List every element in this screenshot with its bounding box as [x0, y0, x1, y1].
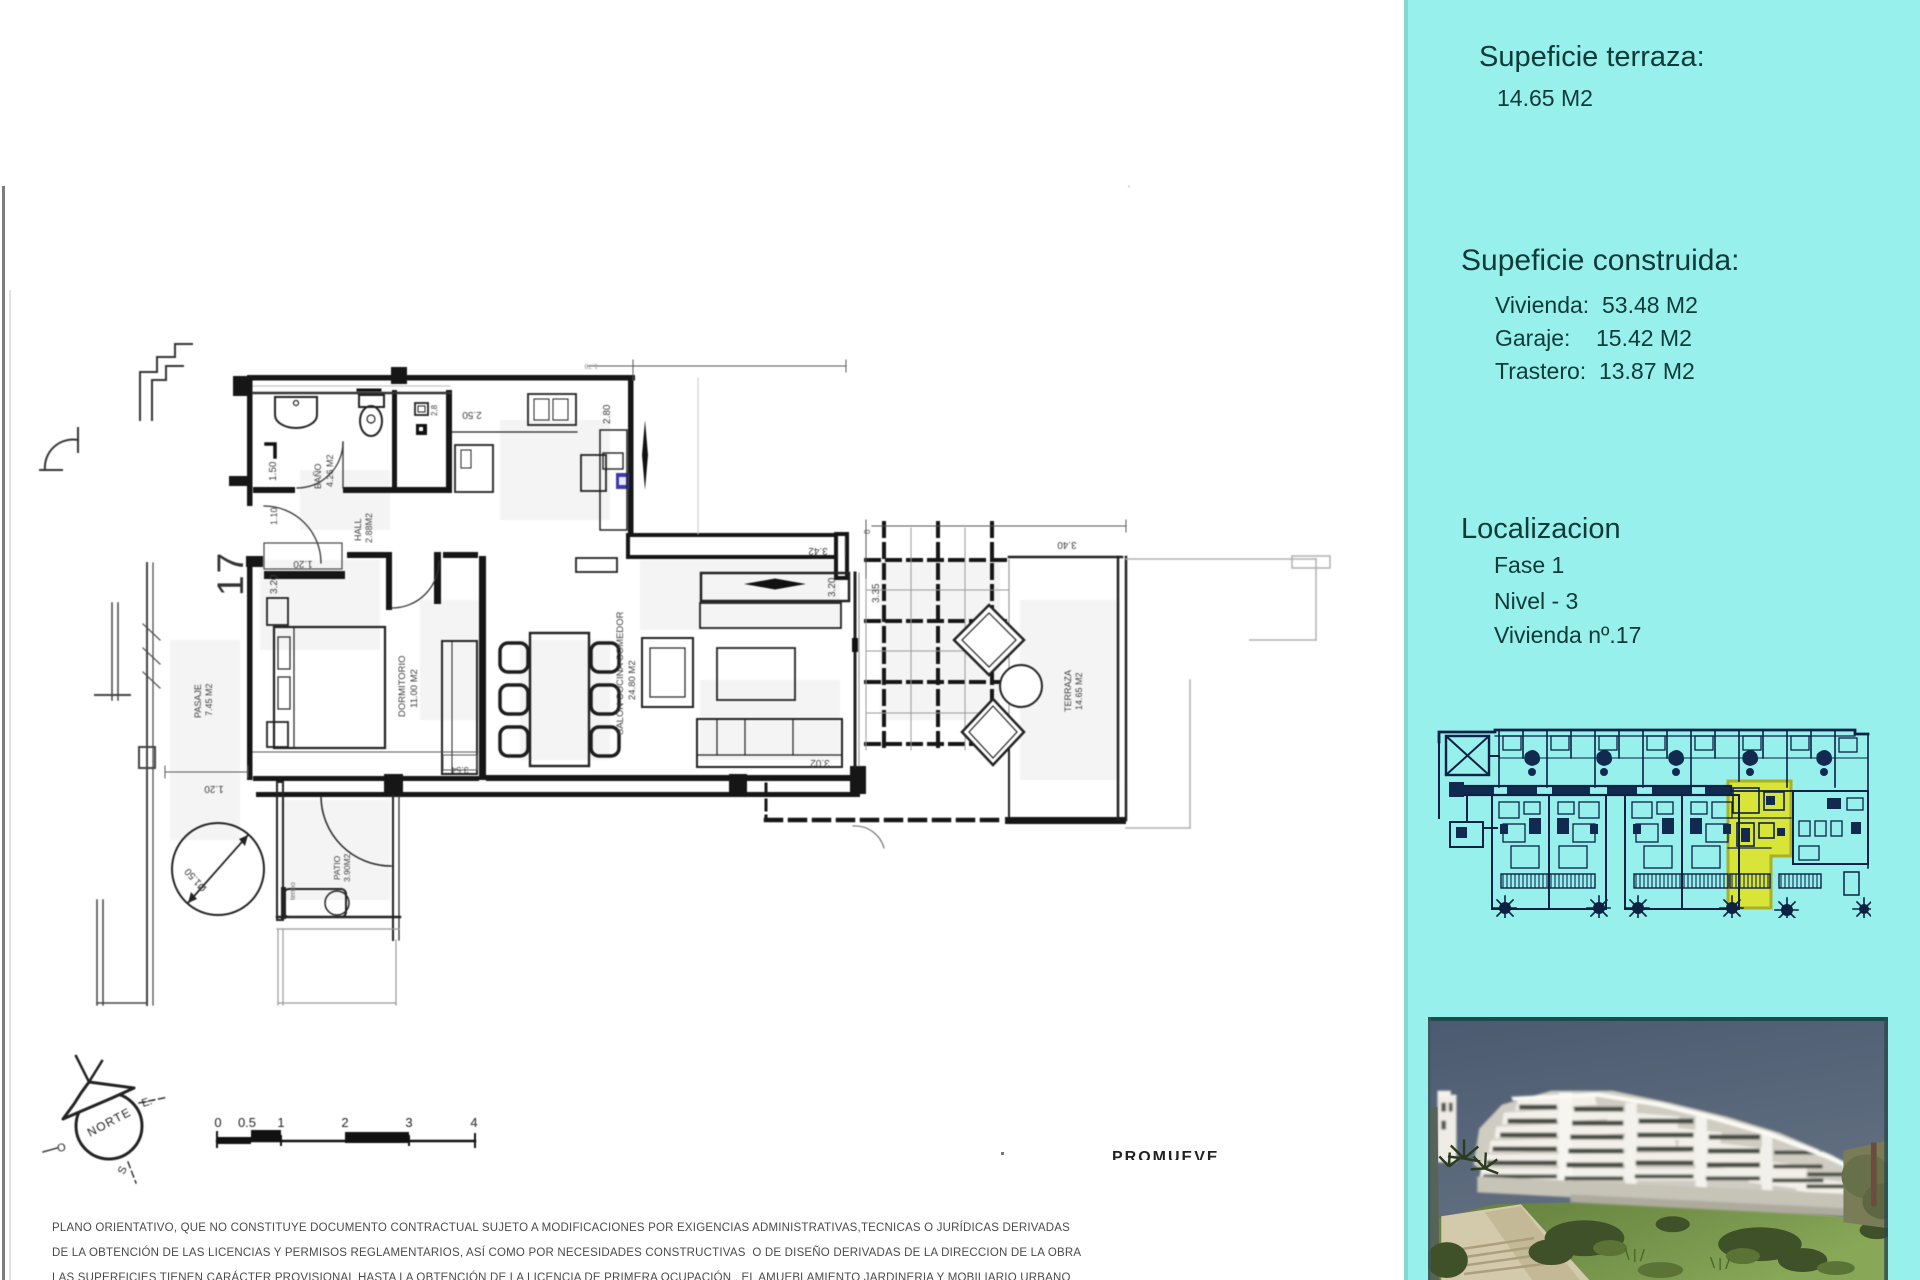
svg-text:Ø1.50: Ø1.50 [183, 865, 210, 893]
svg-text:termo: termo [290, 882, 297, 900]
svg-text:24.80 M2: 24.80 M2 [627, 660, 638, 700]
svg-text:S: S [116, 1165, 130, 1177]
svg-text:4: 4 [470, 1115, 477, 1130]
svg-text:3: 3 [405, 1115, 412, 1130]
svg-text:1.20: 1.20 [293, 558, 313, 569]
svg-text:DORMITORIO: DORMITORIO [397, 655, 408, 717]
svg-text:3.20: 3.20 [269, 574, 280, 594]
svg-text:0: 0 [214, 1115, 221, 1130]
svg-text:BAÑO: BAÑO [313, 463, 323, 489]
svg-text:E.-: E.- [140, 1094, 157, 1110]
svg-text:1.10: 1.10 [269, 507, 279, 525]
svg-text:3.90M2: 3.90M2 [342, 853, 352, 882]
svg-text:PATIO: PATIO [332, 855, 342, 880]
svg-text:2.88M2: 2.88M2 [364, 513, 374, 543]
svg-text:17: 17 [210, 551, 251, 596]
svg-text:11.00 M2: 11.00 M2 [409, 669, 420, 708]
svg-text:3.35: 3.35 [871, 583, 882, 603]
svg-text:SALON COCINA COMEDOR: SALON COCINA COMEDOR [615, 611, 626, 735]
svg-text:3.42: 3.42 [808, 545, 828, 556]
svg-text:0: 0 [863, 529, 872, 534]
svg-text:2: 2 [341, 1115, 348, 1130]
svg-text:PASAJE: PASAJE [193, 684, 203, 718]
svg-text:': ' [1128, 184, 1130, 194]
svg-text:NORTE: NORTE [85, 1105, 134, 1140]
svg-text:1.50: 1.50 [268, 461, 279, 481]
svg-text:2,8: 2,8 [430, 404, 439, 416]
svg-text:TERRAZA: TERRAZA [1063, 670, 1073, 712]
svg-text:1.20: 1.20 [204, 783, 224, 794]
svg-text:3.40: 3.40 [1057, 539, 1077, 550]
svg-text:4.26 M2: 4.26 M2 [325, 454, 335, 487]
svg-text:O: O [56, 1141, 67, 1155]
svg-text:3.02: 3.02 [810, 757, 830, 768]
svg-text:2.80: 2.80 [602, 404, 613, 424]
svg-text:7.45 M2: 7.45 M2 [204, 683, 214, 716]
svg-text:2.50: 2.50 [462, 409, 482, 420]
svg-text:3.54: 3.54 [451, 765, 469, 775]
svg-text:3.20: 3.20 [827, 577, 838, 597]
svg-text:1.78: 1.78 [584, 362, 598, 369]
svg-text:14.65 M2: 14.65 M2 [1074, 672, 1084, 710]
svg-text:HALL: HALL [353, 518, 363, 541]
svg-text:0.5: 0.5 [238, 1115, 256, 1130]
svg-text:1: 1 [277, 1115, 284, 1130]
